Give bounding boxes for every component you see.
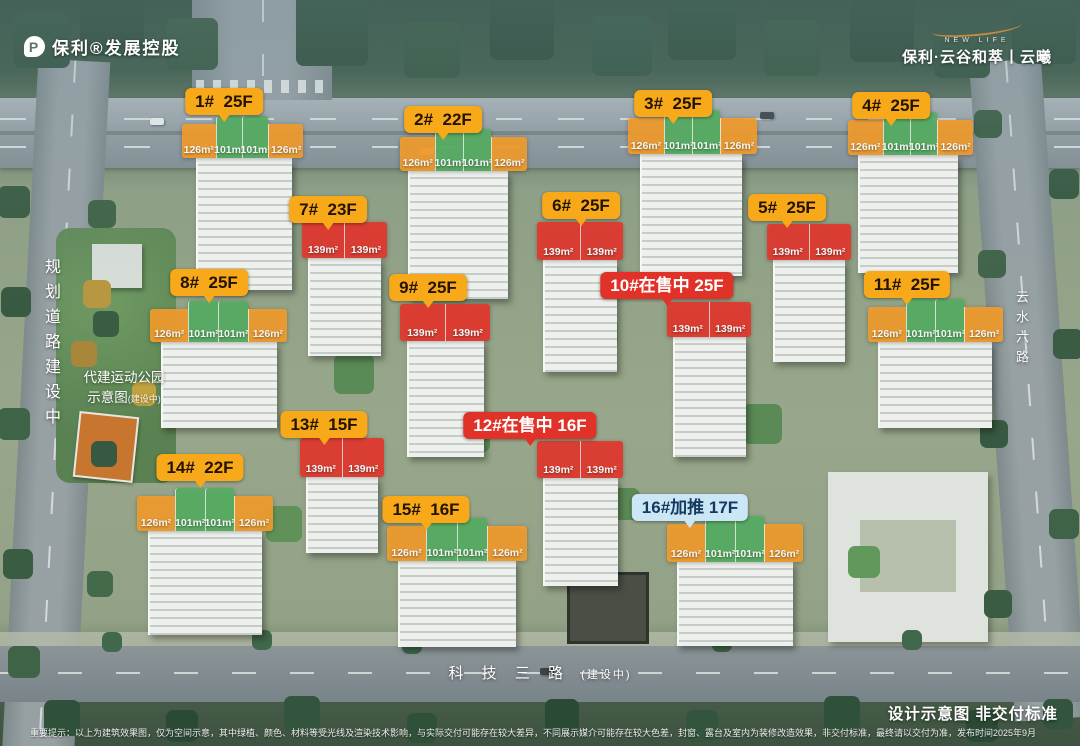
unit-size-tag: 139m² (667, 302, 709, 337)
developer-logo-text: 保利®发展控股 (52, 34, 181, 59)
unit-plan-10: 139m²139m² (667, 302, 751, 337)
unit-size-tag: 101m² (242, 116, 268, 158)
unit-size-tag: 126m² (868, 307, 906, 342)
unit-plan-3: 126m²101m²101m²126m² (628, 118, 757, 154)
building-label-9: 9# 25F (389, 274, 467, 301)
unit-size-tag: 126m² (268, 124, 303, 158)
unit-size-tag: 139m² (580, 222, 624, 260)
yunshui-road-label: 云水六路 (1012, 290, 1031, 370)
building-label-6: 6# 25F (542, 192, 620, 219)
building-label-3: 3# 25F (634, 90, 712, 117)
unit-size-tag: 101m² (906, 299, 935, 342)
unit-size-tag: 101m² (218, 301, 248, 342)
building-label-7: 7# 23F (289, 196, 367, 223)
unit-size-tag: 126m² (937, 120, 973, 155)
unit-size-tag: 139m² (445, 304, 491, 341)
unit-size-tag: 126m² (150, 309, 188, 342)
unit-size-tag: 126m² (848, 120, 883, 155)
unit-size-tag: 126m² (400, 137, 435, 171)
building-label-14: 14# 22F (156, 454, 243, 481)
unit-size-tag: 139m² (809, 224, 852, 260)
building-label-8: 8# 25F (170, 269, 248, 296)
unit-size-tag: 101m² (705, 516, 735, 562)
aerial-site-plan: 126m²101m²101m²126m²1# 25F126m²101m²101m… (0, 0, 1080, 746)
unit-size-tag: 101m² (216, 116, 242, 158)
building-label-10: 10#在售中 25F (600, 272, 733, 299)
building-tower-9 (407, 341, 484, 457)
unit-size-tag: 126m² (764, 524, 803, 562)
park-label-note: (建设中) (128, 394, 161, 404)
unit-size-tag: 126m² (720, 118, 757, 154)
unit-size-tag: 139m² (344, 222, 387, 258)
unit-size-tag: 126m² (137, 496, 175, 531)
unit-plan-7: 139m²139m² (302, 222, 387, 258)
building-label-1: 1# 25F (185, 88, 263, 115)
building-tower-16 (677, 562, 793, 646)
project-logo-subtext: NEW LIFE (902, 37, 1052, 44)
building-tower-15 (398, 561, 516, 647)
unit-size-tag: 101m² (463, 129, 491, 171)
building-tower-14 (148, 531, 262, 635)
unit-plan-13: 139m²139m² (300, 438, 384, 477)
unit-plan-9: 139m²139m² (400, 304, 490, 341)
building-tower-3 (640, 154, 742, 276)
unit-size-tag: 139m² (537, 222, 580, 260)
unit-size-tag: 126m² (628, 118, 664, 154)
park-label: 代建运动公园 示意图(建设中) (62, 368, 186, 409)
unit-plan-16: 126m²101m²101m²126m² (667, 524, 803, 562)
unit-size-tag: 126m² (234, 496, 273, 531)
unit-size-tag: 101m² (935, 299, 964, 342)
unit-size-tag: 126m² (487, 526, 527, 561)
unit-size-tag: 139m² (767, 224, 809, 260)
building-tower-10 (673, 337, 746, 457)
project-logo-text: 保利·云谷和萃丨云曦 (902, 49, 1052, 66)
script-logo-decoration (932, 17, 1023, 39)
unit-size-tag: 139m² (580, 441, 624, 478)
unit-size-tag: 126m² (667, 524, 705, 562)
building-label-2: 2# 22F (404, 106, 482, 133)
unit-plan-4: 126m²101m²101m²126m² (848, 120, 973, 155)
unit-size-tag: 126m² (182, 124, 216, 158)
project-logo: NEW LIFE 保利·云谷和萃丨云曦 (902, 20, 1052, 67)
unit-size-tag: 101m² (457, 518, 487, 561)
building-label-11: 11# 25F (864, 271, 950, 298)
developer-logo: P 保利®发展控股 (24, 34, 181, 59)
building-label-13: 13# 15F (280, 411, 367, 438)
unit-size-tag: 101m² (175, 488, 205, 531)
unit-plan-8: 126m²101m²101m²126m² (150, 309, 287, 342)
poly-logo-icon: P (24, 36, 45, 57)
building-label-15: 15# 16F (382, 496, 469, 523)
building-tower-12 (543, 478, 618, 586)
unit-plan-5: 139m²139m² (767, 224, 851, 260)
unit-size-tag: 139m² (709, 302, 752, 337)
building-label-5: 5# 25F (748, 194, 826, 221)
unit-size-tag: 101m² (735, 516, 765, 562)
render-disclaimer-title: 设计示意图 非交付标准 (888, 702, 1058, 724)
legal-disclaimer: 重要提示：以上为建筑效果图，仅为空间示意，其中绿植、颜色、材料等受光线及渲染技术… (30, 726, 1074, 739)
unit-plan-1: 126m²101m²101m²126m² (182, 124, 303, 158)
unit-size-tag: 139m² (400, 304, 445, 341)
unit-plan-11: 126m²101m²101m²126m² (868, 307, 1003, 342)
building-label-12: 12#在售中 16F (463, 412, 596, 439)
building-tower-13 (306, 477, 378, 553)
unit-plan-6: 139m²139m² (537, 222, 623, 260)
unit-size-tag: 126m² (491, 137, 527, 171)
building-tower-7 (308, 258, 381, 356)
unit-size-tag: 139m² (537, 441, 580, 478)
keji-road-label: 科 技 三 路 (建设中) (0, 662, 1080, 683)
keji-road-note: (建设中) (581, 669, 631, 681)
unit-plan-14: 126m²101m²101m²126m² (137, 496, 273, 531)
planned-road-label: 规划道路建设中 (38, 258, 62, 433)
unit-plan-2: 126m²101m²101m²126m² (400, 137, 527, 171)
building-label-16: 16#加推 17F (632, 494, 748, 521)
building-tower-11 (878, 342, 992, 428)
unit-size-tag: 126m² (387, 526, 426, 561)
unit-size-tag: 139m² (342, 438, 385, 477)
unit-size-tag: 101m² (188, 301, 218, 342)
park-label-line1: 代建运动公园 (62, 368, 186, 388)
unit-plan-12: 139m²139m² (537, 441, 623, 478)
unit-size-tag: 101m² (205, 488, 235, 531)
unit-size-tag: 126m² (248, 309, 287, 342)
building-tower-4 (858, 155, 958, 273)
park-label-line2: 示意图(建设中) (62, 388, 186, 408)
unit-plan-15: 126m²101m²101m²126m² (387, 526, 527, 561)
building-tower-5 (773, 260, 845, 362)
unit-size-tag: 126m² (964, 307, 1003, 342)
building-label-4: 4# 25F (852, 92, 930, 119)
